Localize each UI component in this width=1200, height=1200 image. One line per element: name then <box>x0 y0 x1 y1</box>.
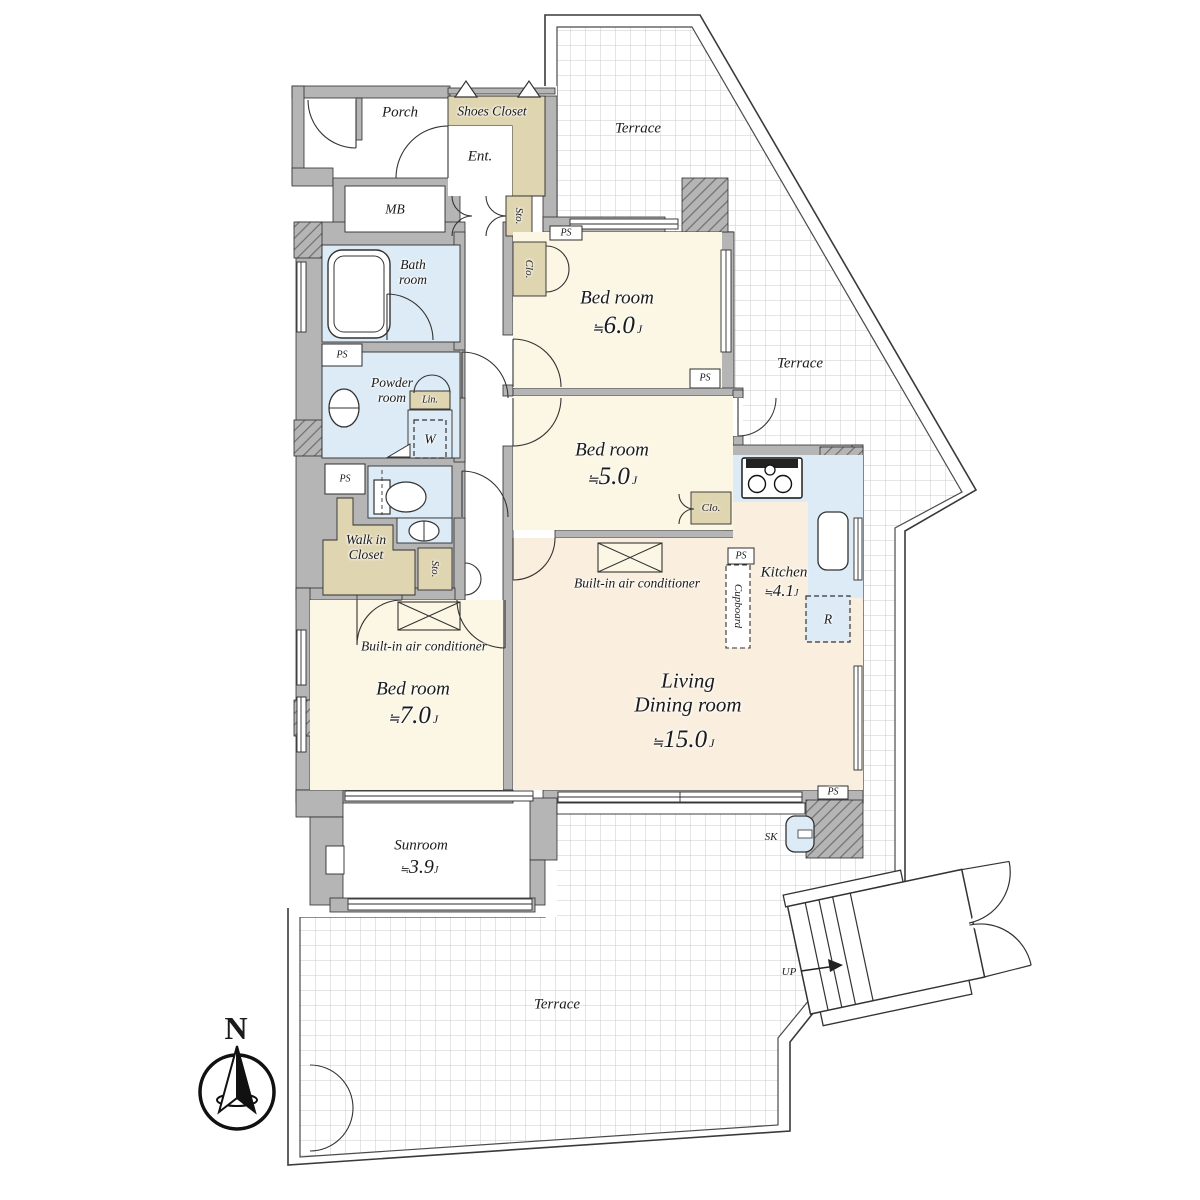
entrance-area <box>448 126 512 196</box>
burner-right <box>775 476 792 493</box>
burner-left <box>749 476 766 493</box>
kitchen-sink <box>818 512 848 570</box>
closet5-area <box>691 492 731 524</box>
storage2-area <box>418 548 452 590</box>
storage-entry-area <box>506 196 532 236</box>
bathtub <box>328 250 390 338</box>
refrigerator-box <box>806 596 850 642</box>
burner-small <box>765 465 775 475</box>
cupboard-box <box>726 565 750 648</box>
compass <box>200 1046 274 1129</box>
floor-plan-drawing <box>0 0 1200 1200</box>
linen-box <box>410 391 450 409</box>
toilet-bowl <box>386 482 426 512</box>
closet6-area <box>513 242 546 296</box>
meter-box-area <box>345 186 445 232</box>
terrace-pillar <box>682 178 728 232</box>
washer-nook-area <box>408 410 452 458</box>
floor-plan: Porch Shoes Closet Ent. MB Sto. Bath roo… <box>0 0 1200 1200</box>
